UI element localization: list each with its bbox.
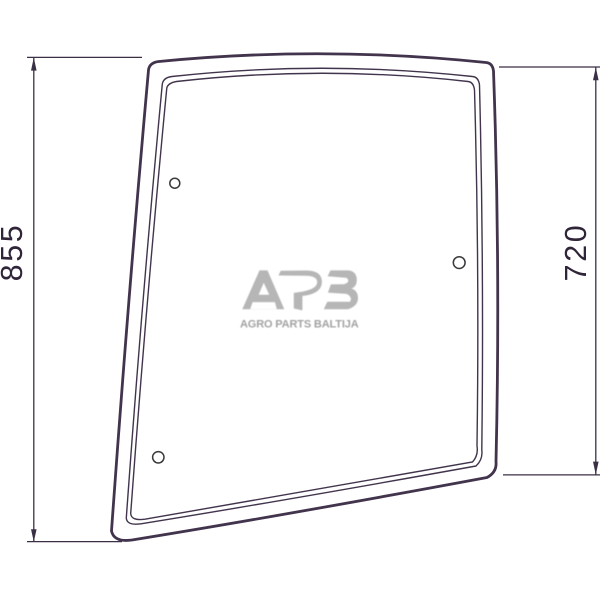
svg-text:AGRO PARTS BALTIJA: AGRO PARTS BALTIJA xyxy=(240,319,359,331)
svg-text:855: 855 xyxy=(0,223,29,282)
svg-text:720: 720 xyxy=(559,223,593,282)
